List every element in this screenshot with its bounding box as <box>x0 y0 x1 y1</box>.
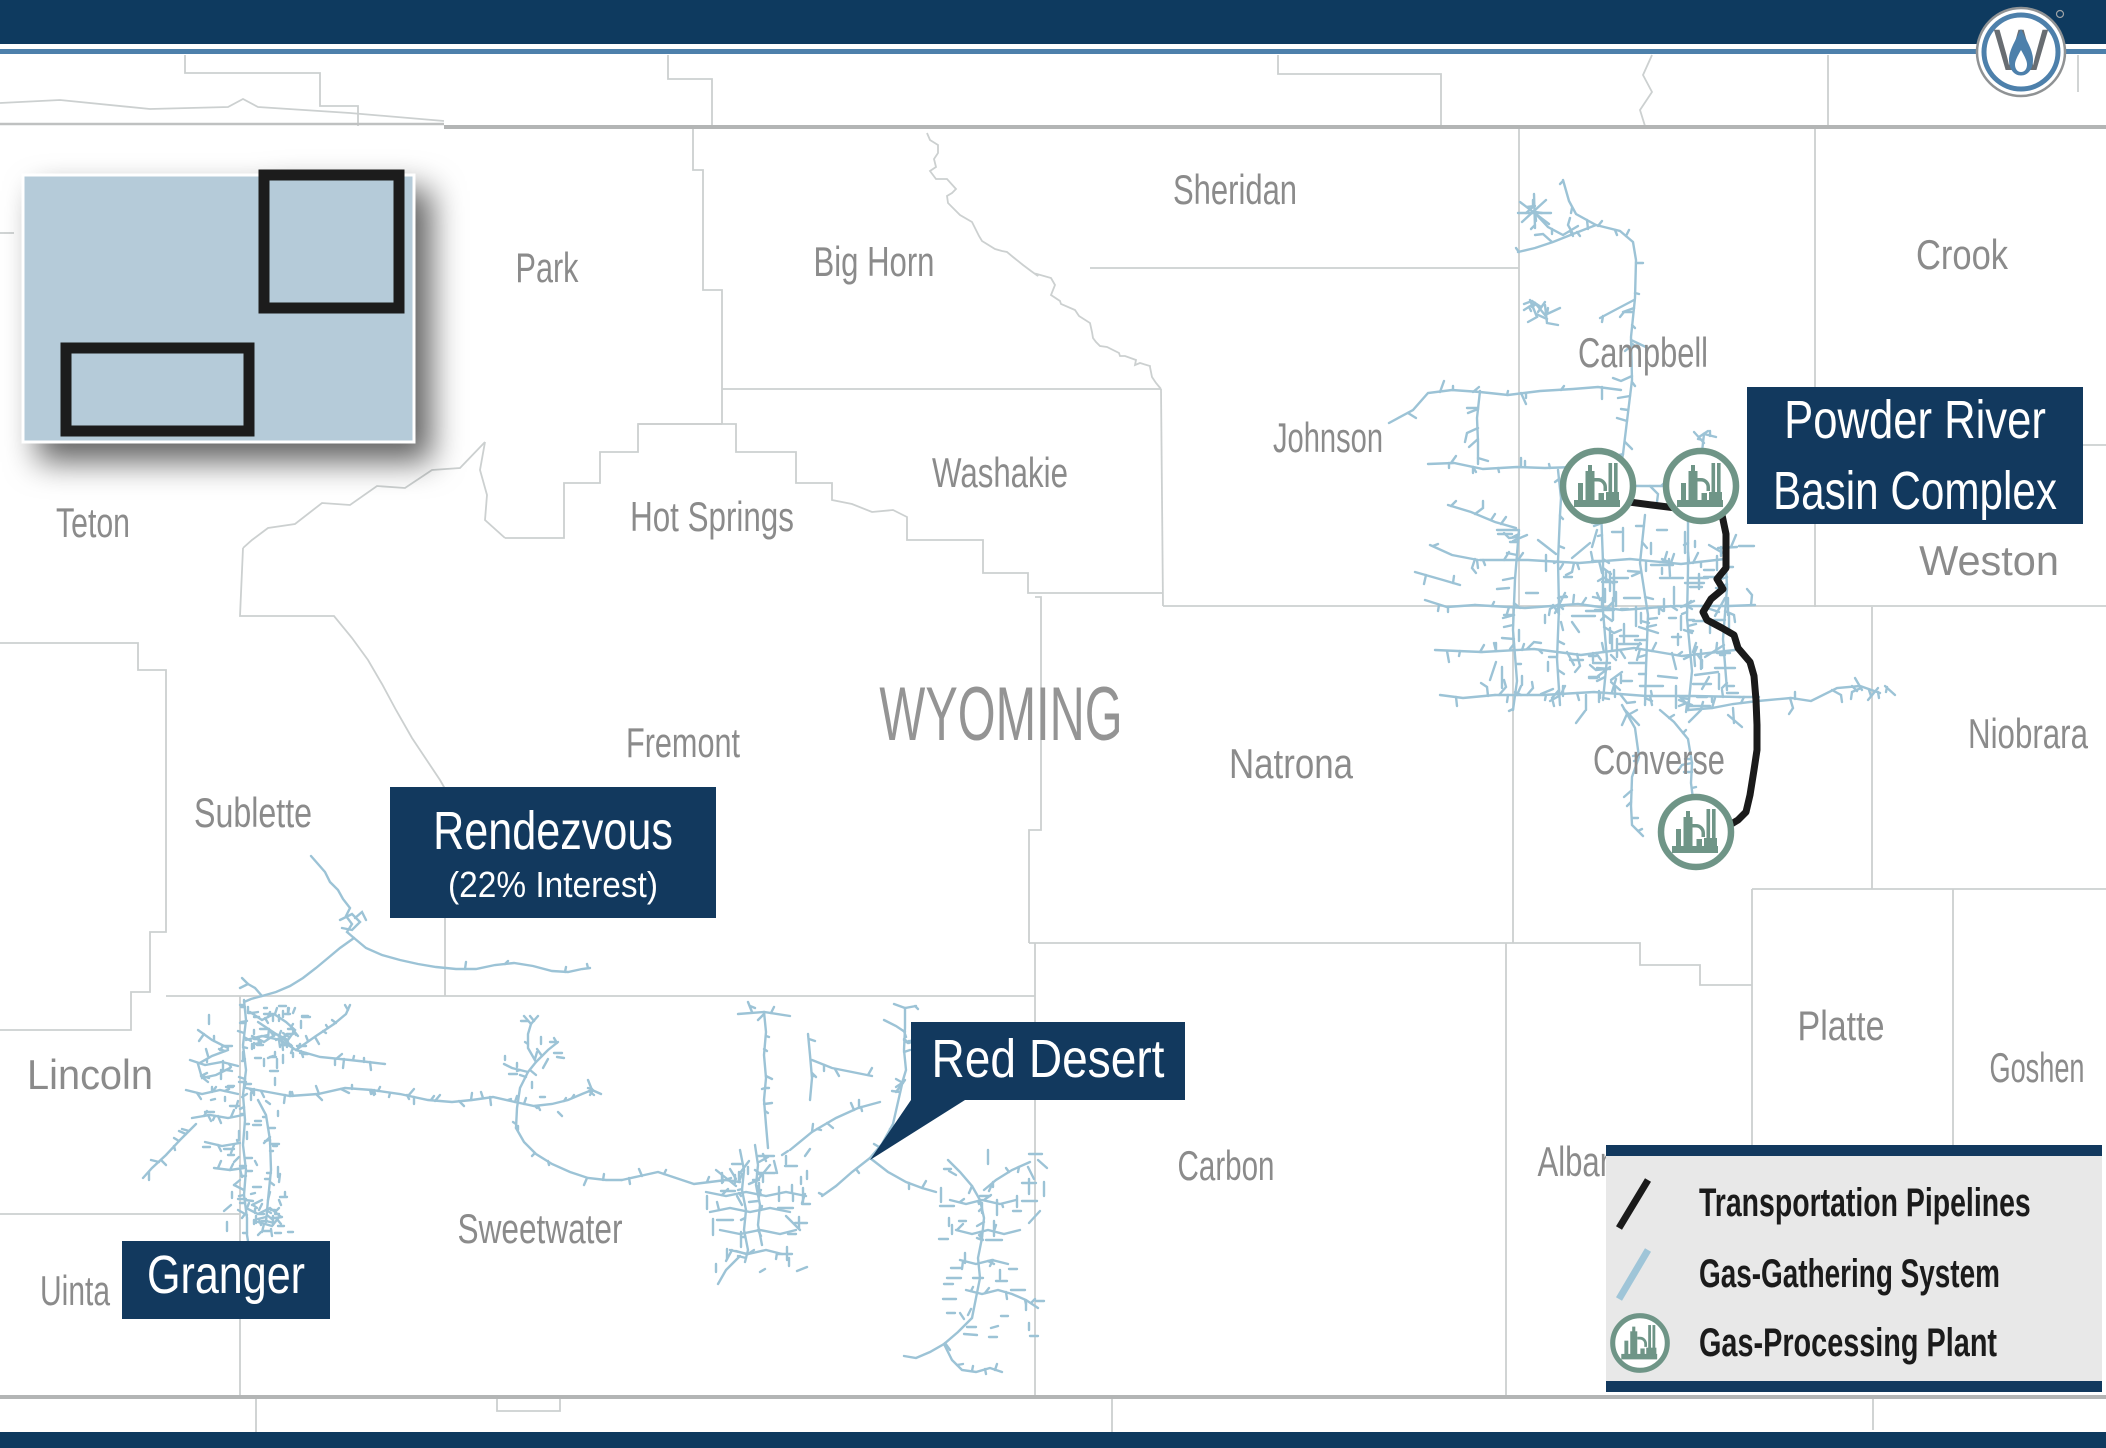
svg-text:Powder River: Powder River <box>1784 391 2046 450</box>
svg-text:Natrona: Natrona <box>1229 741 1353 788</box>
svg-text:Uinta: Uinta <box>40 1267 111 1314</box>
svg-text:WYOMING: WYOMING <box>879 671 1122 757</box>
svg-text:Rendezvous: Rendezvous <box>433 801 673 861</box>
svg-text:Campbell: Campbell <box>1578 329 1708 376</box>
svg-text:Hot Springs: Hot Springs <box>630 492 794 540</box>
svg-text:Red Desert: Red Desert <box>932 1029 1165 1089</box>
svg-text:Johnson: Johnson <box>1273 414 1383 462</box>
svg-text:Granger: Granger <box>147 1245 305 1305</box>
svg-text:Park: Park <box>516 244 579 291</box>
svg-text:Transportation Pipelines: Transportation Pipelines <box>1699 1181 2031 1225</box>
svg-text:Converse: Converse <box>1593 736 1725 783</box>
svg-text:Crook: Crook <box>1916 232 2009 279</box>
svg-text:Platte: Platte <box>1798 1003 1885 1050</box>
svg-text:Carbon: Carbon <box>1178 1142 1275 1189</box>
svg-text:Sheridan: Sheridan <box>1173 166 1297 213</box>
svg-text:Sweetwater: Sweetwater <box>458 1205 623 1252</box>
svg-text:Gas-Gathering System: Gas-Gathering System <box>1699 1252 2000 1296</box>
svg-text:(22% Interest): (22% Interest) <box>448 866 658 905</box>
svg-text:Gas-Processing Plant: Gas-Processing Plant <box>1699 1320 1997 1365</box>
svg-text:Big Horn: Big Horn <box>814 238 935 285</box>
svg-text:Sublette: Sublette <box>194 789 312 836</box>
svg-text:Niobrara: Niobrara <box>1968 709 2088 757</box>
svg-text:Fremont: Fremont <box>626 719 740 766</box>
svg-text:Goshen: Goshen <box>1990 1045 2085 1091</box>
svg-text:Washakie: Washakie <box>932 448 1068 496</box>
svg-text:Lincoln: Lincoln <box>27 1051 153 1098</box>
svg-text:Weston: Weston <box>1919 537 2059 584</box>
svg-text:Teton: Teton <box>56 499 130 546</box>
svg-text:Basin Complex: Basin Complex <box>1773 461 2057 521</box>
